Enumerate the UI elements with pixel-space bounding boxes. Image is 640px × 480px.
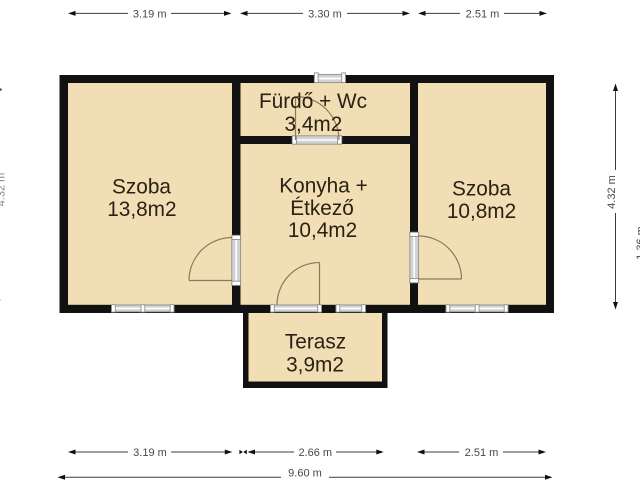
- svg-text:4.32 m: 4.32 m: [0, 173, 8, 207]
- svg-text:3.19 m: 3.19 m: [133, 8, 167, 20]
- svg-text:10,4m2: 10,4m2: [288, 219, 357, 242]
- svg-text:9.60 m: 9.60 m: [288, 468, 322, 480]
- svg-text:Szoba: Szoba: [112, 175, 171, 198]
- svg-text:Étkező: Étkező: [290, 197, 354, 220]
- svg-text:3.19 m: 3.19 m: [133, 447, 167, 459]
- svg-text:Konyha +: Konyha +: [279, 174, 367, 197]
- svg-text:2.51 m: 2.51 m: [465, 447, 499, 459]
- svg-text:2.51 m: 2.51 m: [466, 8, 500, 20]
- svg-text:2.66 m: 2.66 m: [298, 447, 332, 459]
- svg-text:Fürdő + Wc: Fürdő + Wc: [259, 90, 367, 113]
- svg-text:Terasz: Terasz: [285, 331, 346, 354]
- svg-text:3,4m2: 3,4m2: [284, 113, 342, 136]
- svg-text:3,9m2: 3,9m2: [286, 353, 344, 376]
- svg-text:Szoba: Szoba: [452, 177, 511, 200]
- svg-text:13,8m2: 13,8m2: [107, 198, 176, 221]
- svg-text:10,8m2: 10,8m2: [447, 200, 516, 223]
- svg-text:4.32 m: 4.32 m: [606, 175, 618, 209]
- svg-text:1.36 m: 1.36 m: [635, 226, 640, 260]
- svg-text:3.30 m: 3.30 m: [308, 8, 342, 20]
